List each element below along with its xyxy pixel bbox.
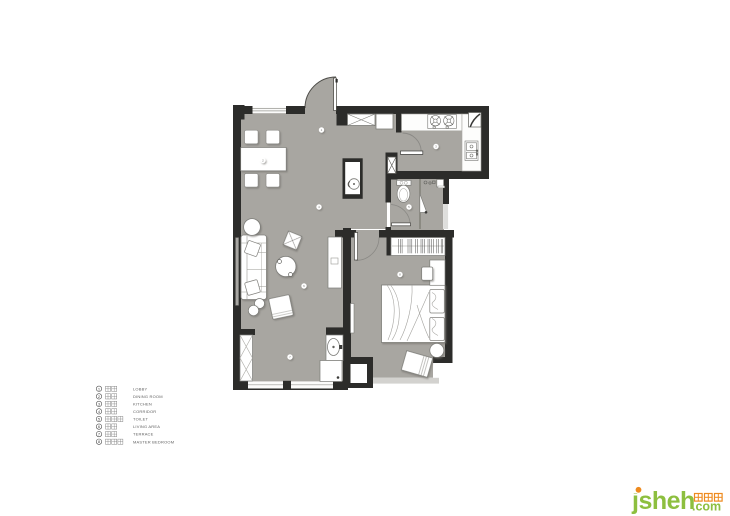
svg-text:LOBBY: LOBBY bbox=[133, 386, 147, 391]
svg-text:LIVING AREA: LIVING AREA bbox=[133, 424, 160, 429]
svg-text:KITCHEN: KITCHEN bbox=[133, 402, 152, 407]
svg-text:TERRACE: TERRACE bbox=[133, 432, 154, 437]
svg-text:TOILET: TOILET bbox=[133, 417, 148, 422]
svg-text:MASTER BEDROOM: MASTER BEDROOM bbox=[133, 439, 174, 444]
svg-text:CORRIDOR: CORRIDOR bbox=[133, 409, 156, 414]
svg-text:DINING ROOM: DINING ROOM bbox=[133, 394, 163, 399]
